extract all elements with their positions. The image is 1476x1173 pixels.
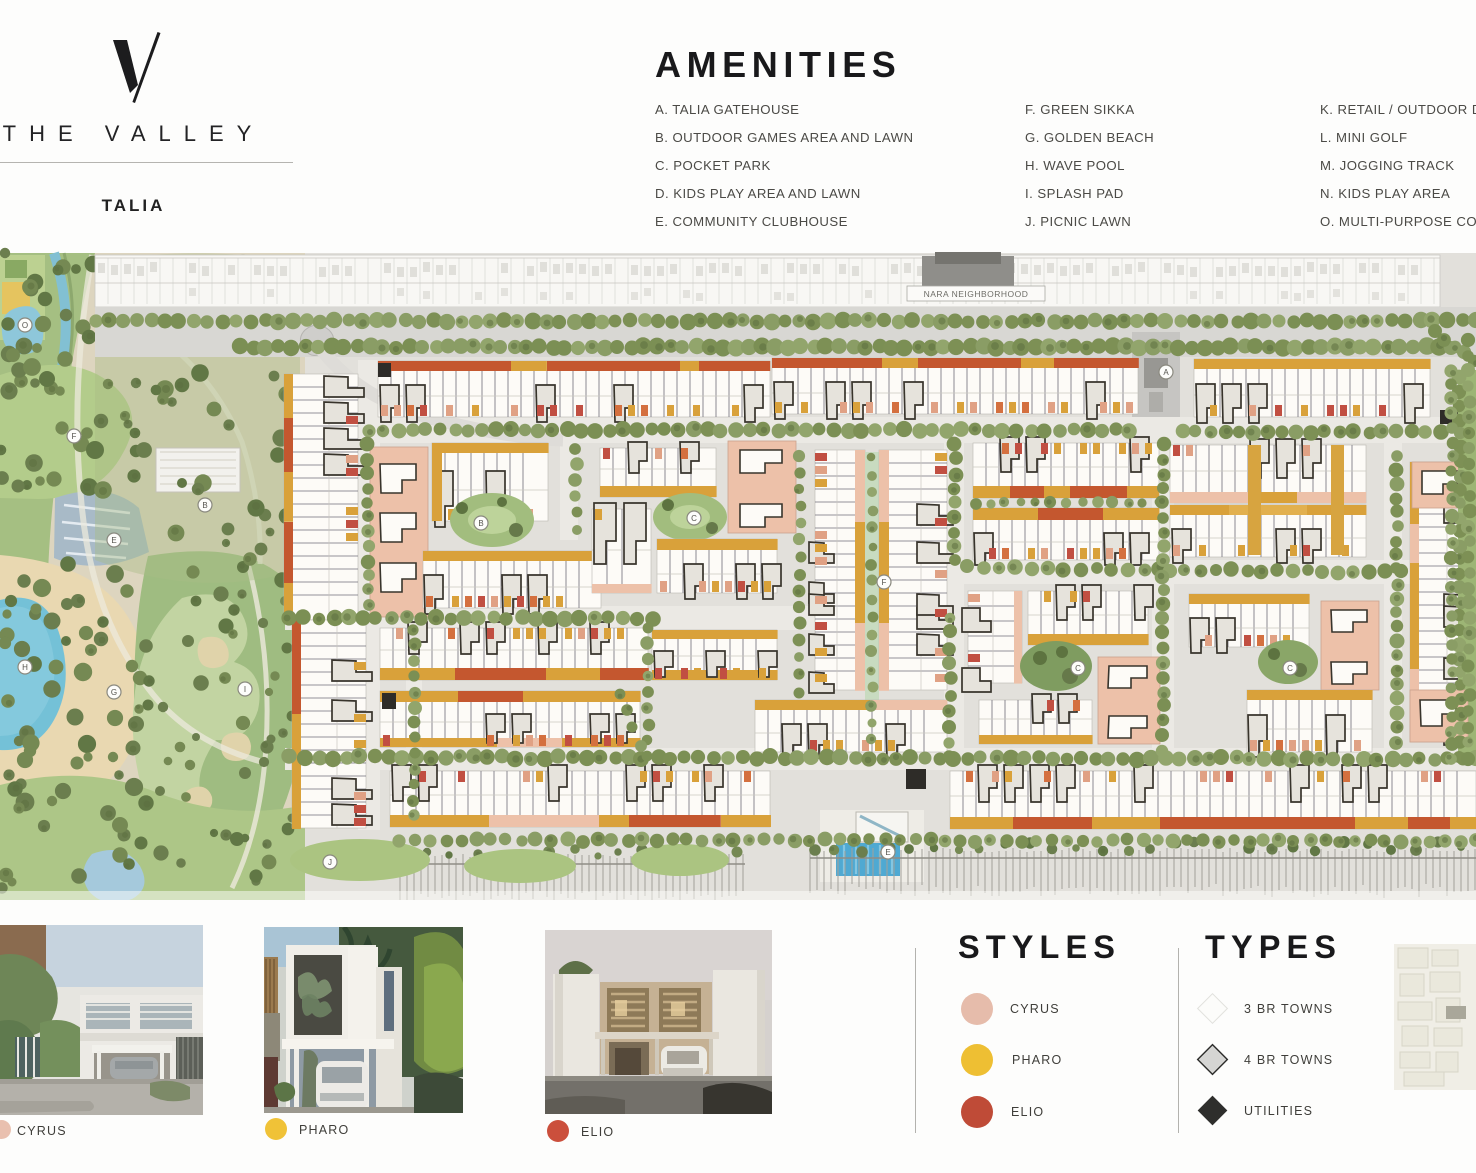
svg-text:F: F — [72, 432, 77, 441]
svg-text:NARA NEIGHBORHOOD: NARA NEIGHBORHOOD — [924, 289, 1029, 299]
svg-text:I: I — [244, 685, 246, 694]
svg-text:E: E — [111, 536, 116, 545]
svg-text:C: C — [1287, 664, 1293, 673]
svg-text:F: F — [882, 578, 887, 587]
svg-text:A: A — [1163, 368, 1169, 377]
svg-text:J: J — [328, 858, 332, 867]
svg-text:O: O — [22, 321, 28, 330]
svg-text:C: C — [1075, 664, 1081, 673]
svg-text:H: H — [22, 663, 28, 672]
svg-text:E: E — [885, 848, 890, 857]
svg-text:G: G — [111, 688, 117, 697]
svg-text:B: B — [478, 519, 483, 528]
svg-text:B: B — [202, 501, 207, 510]
svg-text:C: C — [691, 514, 697, 523]
